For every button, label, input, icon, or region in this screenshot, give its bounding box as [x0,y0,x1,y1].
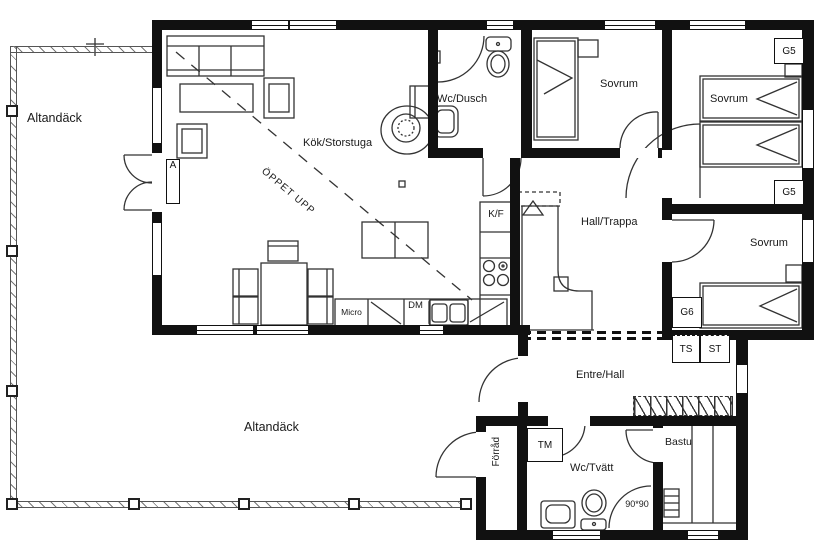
wall-kitchen-hall [510,158,520,335]
appliance-label-dishwasher: DM [402,300,429,311]
door-opening-sauna [653,428,663,462]
cabinet-label: TS [680,344,693,355]
appliance-label: TM [538,440,552,451]
door-opening-bath [483,148,521,158]
room-label-wc-shower: Wc/Dusch [437,93,487,105]
drying-cabinet-box: TS [672,335,700,363]
window [290,20,336,30]
room-label-bedroom-right: Sovrum [750,237,788,249]
stair [518,192,594,330]
wardrobe-label: G6 [680,307,693,318]
window [487,20,513,30]
door-opening-bedroom-top [620,148,658,158]
window [605,20,655,30]
room-label-deck-bottom: Altandäck [244,420,299,434]
appliance-label-fridge: K/F [480,209,512,220]
window [802,220,814,262]
wardrobe-g6: G6 [672,297,702,328]
cleaning-closet-box: ST [700,335,730,363]
annotation-shower-size: 90*90 [618,499,656,509]
railing-post [348,498,360,510]
window [688,530,718,540]
door-opening-entry [518,356,528,402]
railing-post [128,498,140,510]
section-marker-box: A [166,159,180,204]
window [197,325,253,335]
room-label-entry-hall: Entre/Hall [576,369,624,381]
wardrobe-label: G5 [782,46,795,57]
room-label-bedroom-top: Sovrum [600,78,638,90]
window [252,20,288,30]
door-opening-storage [476,432,486,477]
room-label-hall-stairs: Hall/Trappa [581,216,637,228]
window [690,20,745,30]
window [736,365,748,393]
railing-post [238,498,250,510]
floorplan-linework [0,0,831,555]
coat-rack-symbol [633,396,733,416]
railing-post [6,498,18,510]
window [257,325,308,335]
room-label-storage: Förråd [491,437,502,466]
wall-bath-right [521,30,532,158]
window [152,88,162,143]
railing-post [6,385,18,397]
railing-post [6,245,18,257]
floor-plan: G5 G5 G6 TS ST TM A Altandäck Altandäck … [0,0,831,555]
sofa-group [167,36,432,158]
wardrobe-label: G5 [782,187,795,198]
open-floor-dashed-line [522,331,662,340]
door-opening-deck [152,153,162,212]
section-marker-label: A [170,160,177,171]
wall-bedroom-divider [672,204,802,214]
railing-post [6,105,18,117]
wall-storage-right [517,426,527,540]
window [420,325,443,335]
window [553,530,600,540]
wall-extension-top [476,416,748,426]
appliance-label-micro: Micro [335,307,368,317]
fireplace-icon [381,106,433,154]
deck-railing-top [10,46,152,53]
door-opening-bedroom-top-right [662,150,672,198]
room-label-bedroom-top-right: Sovrum [710,93,748,105]
room-label-deck-left: Altandäck [27,111,82,125]
cabinet-label: ST [709,344,722,355]
washing-machine-box: TM [527,428,563,462]
wardrobe-g5-middle: G5 [774,180,804,205]
kitchen-island [362,222,428,258]
door-opening-bedroom-right [662,220,672,262]
room-label-sauna: Bastu [665,436,692,448]
railing-post [460,498,472,510]
door-opening-laundry [548,416,590,426]
wardrobe-g5-top: G5 [774,38,804,64]
window [152,223,162,275]
room-label-wc-laundry: Wc/Tvätt [570,462,613,474]
wall-extension-right [736,330,748,540]
room-label-kitchen: Kök/Storstuga [303,137,372,149]
window [802,110,814,168]
dining-set [233,241,333,325]
